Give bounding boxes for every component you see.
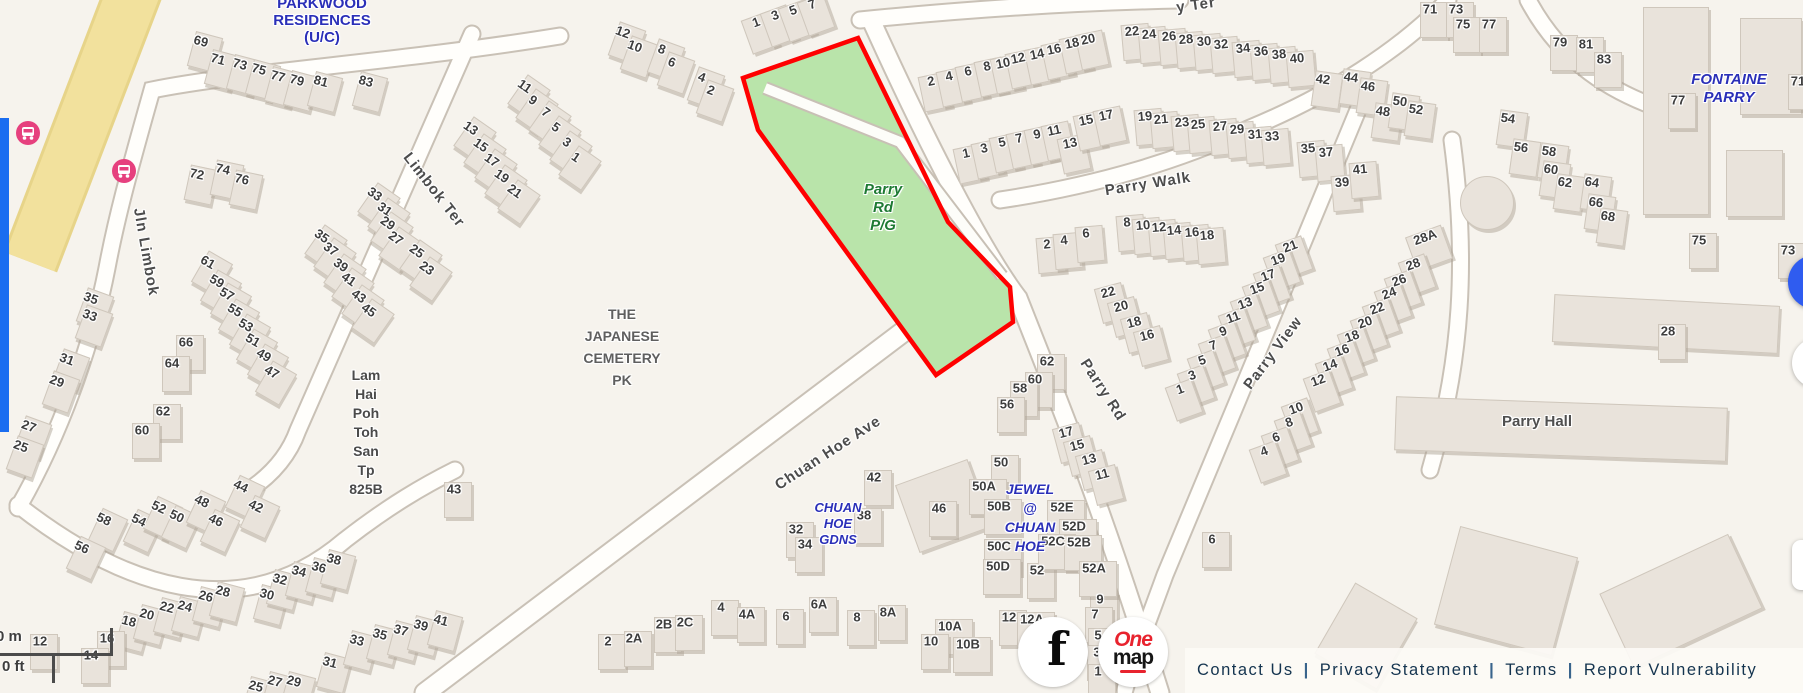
house-number-label: 23	[1174, 114, 1190, 130]
house-number-label: 50	[994, 455, 1008, 470]
house-number-label: 4	[717, 600, 724, 615]
house-number-label: 1	[1174, 381, 1186, 398]
house-number-label: 22	[1099, 283, 1117, 301]
house-number-label: 1	[569, 149, 584, 165]
house-number-label: 56	[72, 537, 91, 557]
footer-bar: Contact Us | Privacy Statement | Terms |…	[1185, 648, 1803, 693]
house-number-label: 14	[1028, 45, 1045, 63]
area-label: CHUANHOEGDNS	[815, 500, 862, 548]
onemap-logo-map: map	[1113, 649, 1153, 668]
house-number-label: 81	[312, 72, 330, 90]
area-label: JEWEL@CHUANHOE	[1005, 480, 1056, 556]
house-number-label: 50D	[986, 559, 1010, 574]
footer-separator: |	[1489, 661, 1495, 680]
house-number-label: 38	[1271, 46, 1287, 62]
house-number-label: 46	[1360, 78, 1376, 95]
house-number-label: 31	[1247, 126, 1263, 142]
onemap-logo-tagline	[1120, 670, 1146, 673]
house-number-label: 16	[1045, 40, 1062, 58]
house-number-label: 17	[1097, 106, 1114, 124]
house-number-label: 60	[135, 423, 149, 438]
scale-bar	[0, 653, 113, 656]
house-number-label: 1	[961, 145, 971, 161]
house-number-label: 6	[666, 54, 678, 71]
house-number-label: 38	[325, 550, 343, 568]
house-number-label: 14	[1166, 222, 1182, 238]
house-number-label: 12	[1009, 49, 1026, 67]
house-number-label: 3	[769, 7, 781, 24]
house-number-label: 22	[158, 598, 176, 616]
house-number-label: 25	[1190, 116, 1206, 132]
house-number-label: 32	[271, 570, 289, 588]
house-number-label: 32	[789, 522, 803, 537]
map-canvas[interactable]: 6971737577798183727476119753113151719213…	[0, 0, 1803, 693]
street-label: Parry Walk	[1104, 169, 1193, 199]
house-number-label: 33	[348, 631, 366, 649]
house-number-label: 18	[1063, 34, 1080, 52]
house-number-label: 29	[48, 371, 67, 390]
house-number-label: 26	[197, 587, 215, 605]
house-number-label: 50A	[972, 479, 996, 494]
house-number-label: 28	[1178, 31, 1194, 47]
house-number-label: 8	[1123, 214, 1132, 230]
house-number-label: 37	[392, 621, 410, 639]
house-number-label: 52	[1408, 101, 1424, 118]
street-label: Limbok Ter	[400, 149, 469, 230]
house-number-label: 13	[1061, 134, 1078, 152]
house-number-label: 58	[94, 509, 113, 529]
house-number-label: 35	[1300, 140, 1316, 156]
area-label: FONTAINEPARRY	[1691, 71, 1767, 107]
house-number-label: 29	[1229, 121, 1245, 137]
area-label: THEJAPANESECEMETERYPK	[583, 303, 660, 391]
house-number-label: 42	[867, 470, 881, 485]
house-number-label: 77	[269, 67, 287, 85]
house-number-label: 18	[1199, 227, 1215, 243]
house-number-label: 19	[492, 166, 512, 187]
house-number-label: 12	[1002, 610, 1016, 625]
house-number-label: 39	[412, 616, 430, 634]
house-number-label: 10	[626, 36, 645, 55]
house-number-label: 64	[1584, 174, 1600, 191]
house-number-label: 48	[1375, 103, 1391, 120]
house-number-label: 7	[806, 0, 818, 12]
house-number-label: 4	[1258, 443, 1270, 460]
house-number-label: 28A	[1411, 226, 1439, 248]
house-number-label: 7	[1091, 607, 1098, 622]
house-number-label: 15	[1068, 436, 1086, 454]
house-number-label: 52D	[1062, 519, 1086, 534]
house-number-label: 58	[1541, 143, 1557, 160]
house-number-label: 31	[321, 653, 339, 671]
house-number-label: 10B	[956, 637, 980, 652]
house-number-label: 42	[246, 496, 265, 516]
facebook-button[interactable]: f	[1018, 617, 1088, 687]
house-number-label: 64	[165, 356, 179, 371]
scale-bar-tick	[110, 628, 113, 656]
street-label: Jln Limbok	[130, 207, 162, 298]
house-number-label: 7	[1014, 130, 1024, 146]
house-number-label: 39	[1334, 174, 1350, 190]
house-number-label: 32	[1213, 36, 1229, 52]
house-number-label: 27	[20, 416, 39, 435]
house-number-label: 26	[1161, 28, 1177, 44]
house-number-label: 12	[1151, 219, 1167, 235]
area-label: ParryRdP/G	[864, 181, 902, 235]
house-number-label: 11	[1046, 121, 1063, 139]
house-number-label: 8	[853, 610, 860, 625]
bus-stop-icon[interactable]	[15, 120, 41, 146]
footer-link-contact-us[interactable]: Contact Us	[1197, 661, 1294, 680]
house-number-label: 4	[696, 69, 708, 86]
house-number-label: 3	[560, 134, 575, 150]
house-number-label: 62	[1557, 174, 1573, 191]
house-number-label: 2C	[677, 615, 694, 630]
house-number-label: 66	[179, 335, 193, 350]
house-number-label: 11	[1093, 465, 1110, 483]
footer-link-terms[interactable]: Terms	[1505, 661, 1557, 680]
side-panel-handle[interactable]	[0, 118, 9, 432]
house-number-label: 47	[262, 362, 282, 382]
footer-separator: |	[1304, 661, 1310, 680]
house-number-label: 6A	[811, 597, 828, 612]
house-number-label: 75	[250, 60, 268, 78]
house-number-label: 83	[357, 72, 375, 90]
house-number-label: 35	[371, 625, 389, 643]
house-number-label: 10	[994, 54, 1011, 72]
house-number-label: 2	[1043, 236, 1052, 252]
house-number-label: 16	[1138, 326, 1156, 344]
house-number-label: 72	[188, 165, 205, 183]
house-number-label: 68	[1600, 208, 1616, 225]
house-number-label: 22	[1124, 23, 1140, 39]
house-number-label: 5	[1196, 352, 1208, 369]
house-number-label: 15	[1077, 111, 1094, 129]
house-number-label: 60	[1543, 161, 1559, 178]
house-number-label: 40	[1289, 50, 1305, 66]
house-number-label: 10A	[938, 619, 962, 634]
house-number-label: 41	[1352, 161, 1368, 177]
street-label: Parry Rd	[1077, 356, 1130, 424]
house-number-label: 7	[539, 104, 554, 120]
house-number-label: 56	[1000, 397, 1014, 412]
house-number-label: 75	[1692, 233, 1706, 248]
house-number-label: 50	[1392, 93, 1408, 110]
house-number-label: 21	[1153, 111, 1169, 127]
house-number-label: 27	[1212, 118, 1228, 134]
house-number-label: 35	[82, 288, 101, 307]
house-number-label: 37	[1318, 144, 1334, 160]
scale-bar-tick	[52, 653, 55, 683]
house-number-label: 33	[1264, 128, 1280, 144]
house-number-label: 34	[290, 562, 308, 580]
house-number-label: 5	[549, 119, 564, 135]
house-number-label: 27	[266, 672, 284, 690]
house-number-label: 28	[1404, 254, 1423, 273]
house-number-label: 16	[1184, 224, 1200, 240]
house-number-label: 20	[1112, 297, 1130, 315]
house-number-label: 5	[787, 2, 799, 19]
house-number-label: 81	[1579, 37, 1593, 52]
house-number-label: 6	[782, 609, 789, 624]
house-number-label: 30	[1196, 33, 1212, 49]
house-number-label: 2	[705, 82, 717, 99]
area-label: LamHaiPohTohSanTp825B	[349, 366, 382, 499]
house-number-label: 2	[604, 634, 611, 649]
house-number-label: 77	[1482, 17, 1496, 32]
house-number-label: 8	[982, 58, 992, 74]
area-label: PARKWOODRESIDENCES(U/C)	[273, 0, 371, 46]
onemap-logo[interactable]: One map	[1098, 617, 1168, 687]
map-control-button[interactable]	[1792, 540, 1803, 590]
bus-stop-icon[interactable]	[111, 158, 137, 184]
house-number-label: 71	[1791, 74, 1803, 89]
house-number-label: 25	[12, 436, 31, 455]
house-number-label: 2	[926, 73, 936, 89]
house-number-label: 2A	[626, 631, 643, 646]
scale-meters-label: 0 m	[0, 628, 22, 645]
house-number-label: 62	[1040, 354, 1054, 369]
house-number-label: 3	[1186, 367, 1198, 384]
house-number-label: 44	[1343, 69, 1359, 86]
house-number-label: 1	[750, 14, 762, 31]
house-number-label: 76	[233, 170, 250, 188]
house-number-label: 48	[192, 491, 211, 511]
house-number-label: 20	[1079, 30, 1096, 48]
house-number-label: 24	[1141, 26, 1157, 42]
house-number-label: 46	[932, 501, 946, 516]
house-number-label: 71	[1423, 2, 1437, 17]
house-number-label: 62	[156, 404, 170, 419]
house-number-label: 10	[924, 634, 938, 649]
house-number-label: 23	[417, 258, 437, 279]
house-number-label: 4	[944, 68, 954, 84]
house-number-label: 60	[1028, 372, 1042, 387]
house-number-label: 42	[1315, 71, 1331, 88]
house-number-label: 31	[58, 349, 77, 368]
house-number-label: 73	[231, 55, 249, 73]
house-number-label: 7	[1207, 337, 1219, 354]
house-number-label: 24	[176, 597, 194, 615]
house-number-label: 6	[963, 63, 973, 79]
house-number-label: 52B	[1067, 535, 1091, 550]
house-number-label: 4A	[739, 607, 756, 622]
area-label: Parry Hall	[1502, 414, 1572, 430]
house-number-label: 19	[1137, 108, 1153, 124]
house-number-label: 77	[1671, 93, 1685, 108]
house-number-label: 25	[247, 677, 265, 693]
footer-link-report-vulnerability[interactable]: Report Vulnerability	[1584, 661, 1757, 680]
house-number-label: 6	[1082, 225, 1091, 241]
footer-separator: |	[1568, 661, 1574, 680]
house-number-label: 43	[447, 482, 461, 497]
house-number-label: 33	[81, 305, 100, 324]
house-number-label: 73	[1449, 2, 1463, 17]
house-number-label: 29	[285, 672, 303, 690]
house-number-label: 54	[1500, 110, 1516, 127]
house-number-label: 10	[1135, 217, 1151, 233]
house-number-label: 4	[1060, 232, 1069, 248]
house-number-label: 44	[231, 476, 250, 496]
house-number-label: 54	[129, 510, 148, 530]
house-number-label: 46	[206, 510, 225, 530]
house-number-label: 30	[258, 585, 276, 603]
house-number-label: 69	[192, 32, 210, 50]
house-number-label: 5	[997, 134, 1007, 150]
house-number-label: 61	[198, 252, 218, 272]
house-number-label: 12	[33, 634, 47, 649]
facebook-icon: f	[1039, 626, 1067, 672]
house-number-label: 9	[1217, 323, 1229, 340]
house-number-label: 28	[1661, 324, 1675, 339]
house-number-label: 9	[1096, 592, 1103, 607]
house-number-label: 2B	[656, 617, 673, 632]
house-number-label: 41	[432, 611, 450, 629]
house-number-label: 8	[656, 41, 668, 58]
house-number-label: 18	[120, 612, 138, 630]
house-number-label: 3	[979, 140, 989, 156]
house-number-label: 83	[1597, 52, 1611, 67]
street-label: y Ter	[1175, 0, 1217, 16]
house-number-label: 52	[149, 497, 168, 517]
house-number-label: 52	[1030, 563, 1044, 578]
house-number-label: 73	[1781, 243, 1795, 258]
house-number-label: 79	[288, 71, 306, 89]
house-number-label: 58	[1013, 381, 1027, 396]
house-number-label: 74	[214, 160, 231, 178]
house-number-label: 50	[167, 506, 186, 526]
house-number-label: 8A	[880, 605, 897, 620]
house-number-label: 71	[209, 50, 227, 68]
house-number-label: 75	[1456, 17, 1470, 32]
house-number-label: 21	[505, 181, 525, 202]
house-number-label: 79	[1553, 35, 1567, 50]
labels-layer: 6971737577798183727476119753113151719213…	[0, 0, 1803, 693]
house-number-label: 6	[1208, 532, 1215, 547]
street-label: Parry View	[1240, 313, 1306, 392]
house-number-label: 34	[1235, 40, 1251, 56]
house-number-label: 28	[214, 582, 232, 600]
house-number-label: 34	[798, 537, 812, 552]
house-number-label: 52A	[1082, 561, 1106, 576]
scale-feet-label: 0 ft	[2, 658, 25, 675]
house-number-label: 36	[1253, 43, 1269, 59]
house-number-label: 20	[138, 605, 156, 623]
house-number-label: 9	[1032, 126, 1042, 142]
house-number-label: 56	[1513, 139, 1529, 156]
footer-link-privacy-statement[interactable]: Privacy Statement	[1320, 661, 1479, 680]
house-number-label: 13	[1080, 450, 1098, 468]
house-number-label: 6	[1270, 429, 1282, 446]
